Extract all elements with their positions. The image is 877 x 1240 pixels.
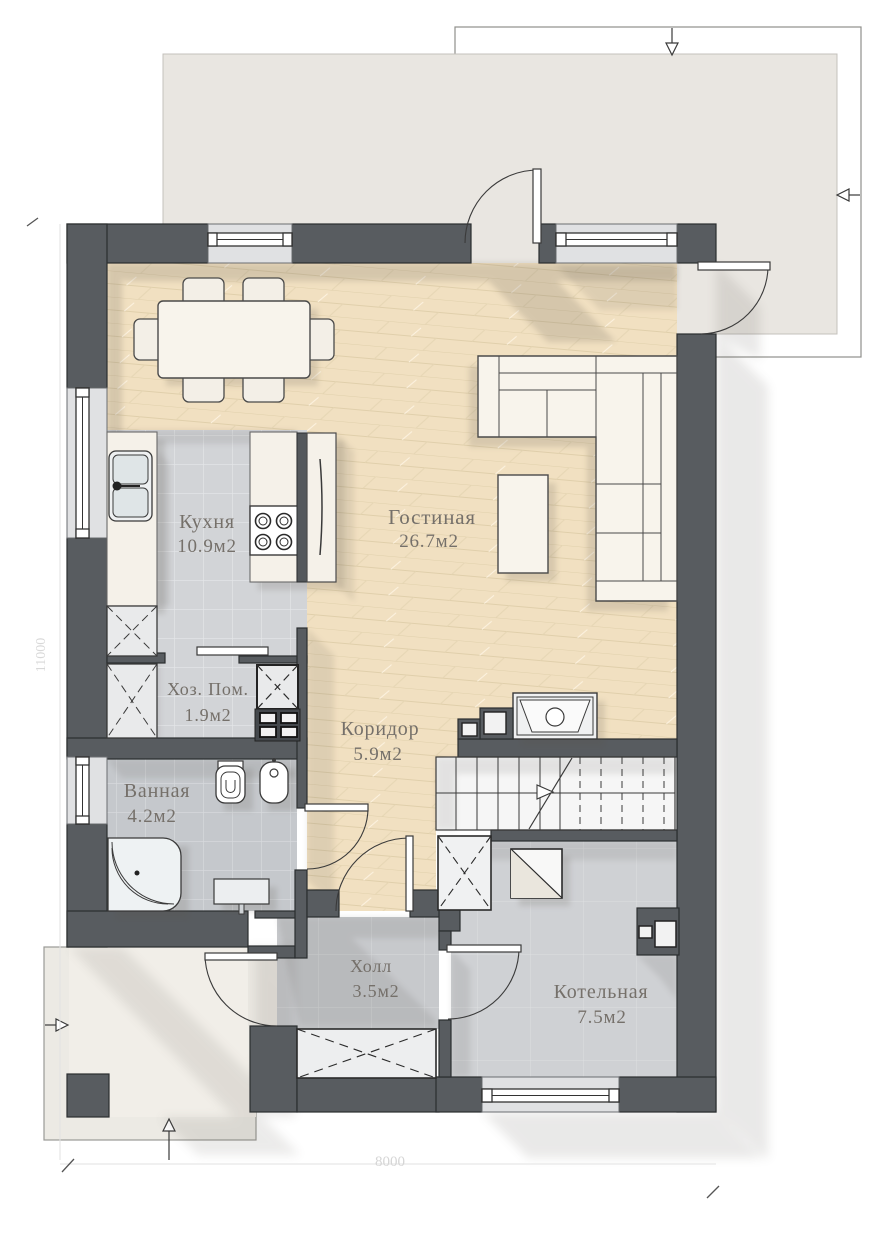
svg-text:Ванная: Ванная xyxy=(124,780,191,802)
svg-text:3.5м2: 3.5м2 xyxy=(353,981,400,1001)
svg-text:26.7м2: 26.7м2 xyxy=(399,531,459,552)
svg-text:7.5м2: 7.5м2 xyxy=(577,1007,626,1028)
svg-text:5.9м2: 5.9м2 xyxy=(353,744,402,765)
svg-text:Гостиная: Гостиная xyxy=(388,505,476,529)
svg-text:10.9м2: 10.9м2 xyxy=(177,536,237,557)
svg-text:1.9м2: 1.9м2 xyxy=(185,705,232,725)
svg-text:4.2м2: 4.2м2 xyxy=(127,806,176,827)
svg-text:11000: 11000 xyxy=(34,638,49,672)
svg-text:Кухня: Кухня xyxy=(179,511,235,533)
svg-text:Коридор: Коридор xyxy=(341,718,420,740)
svg-text:Хоз. Пом.: Хоз. Пом. xyxy=(167,679,249,699)
svg-text:8000: 8000 xyxy=(375,1154,405,1170)
svg-text:Котельная: Котельная xyxy=(554,981,649,1003)
svg-text:Холл: Холл xyxy=(350,956,392,976)
